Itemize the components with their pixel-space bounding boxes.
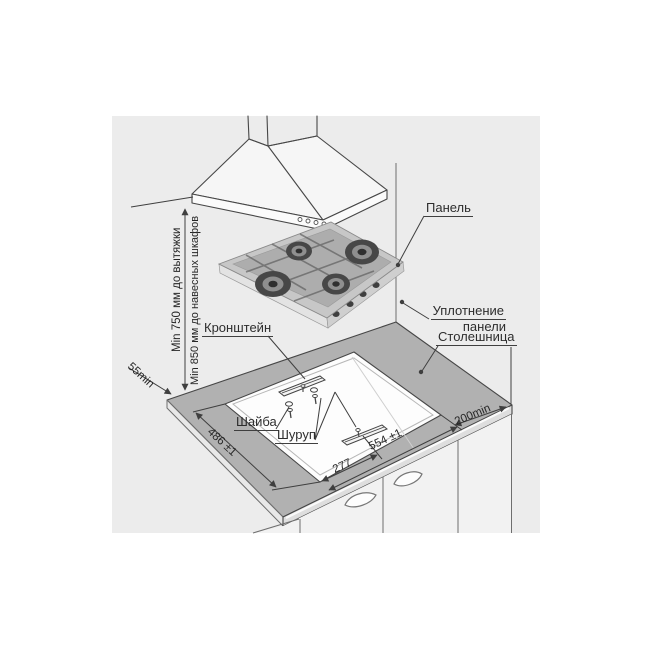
wall-cabinet-clearance-dimension: Min 850 мм до навесных шкафов	[189, 216, 201, 385]
screw-label: Шуруп	[275, 428, 318, 444]
countertop-label: Столешница	[436, 330, 517, 346]
hood-clearance-dimension: Min 750 мм до вытяжки	[171, 228, 183, 352]
hob-panel	[219, 222, 404, 328]
panel-label: Панель	[424, 201, 473, 217]
diagram-line-art	[0, 0, 650, 650]
bracket-label: Кронштейн	[202, 321, 273, 337]
washer-label: Шайба	[234, 415, 279, 431]
installation-diagram: Панель Уплотнение панели Столешница Крон…	[0, 0, 650, 650]
cooker-hood	[192, 116, 387, 230]
